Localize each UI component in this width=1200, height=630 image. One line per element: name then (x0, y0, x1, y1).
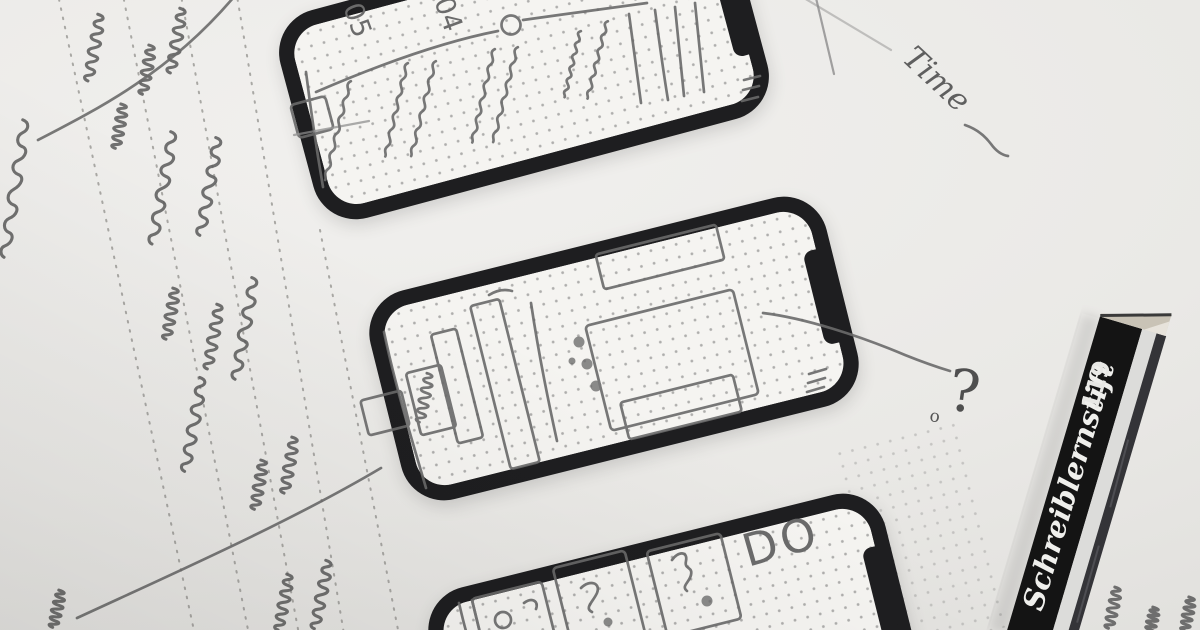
question-mark-small-letter: o (928, 406, 941, 427)
question-mark: ? (944, 356, 984, 428)
page-number-04: 04 (427, 0, 468, 36)
ink-sketch-layer: 05 04 (0, 0, 1200, 630)
pencil-object: Schreiblernstift 119 (986, 290, 1172, 630)
grid-card-1 (472, 581, 561, 630)
question-annotation: ? o (763, 313, 984, 427)
list-bar-2 (470, 299, 540, 469)
wireframe-detail-screen (360, 225, 826, 488)
card-main-sketch (585, 289, 759, 431)
header-divider-line (316, 31, 498, 92)
bar-cap-line (489, 290, 512, 295)
time-label: Time (896, 40, 978, 120)
crossing-line-1 (804, 0, 891, 50)
card-1-circle-sketch (495, 612, 511, 628)
card-top-sketch (595, 225, 724, 290)
list-bar-1 (431, 329, 483, 444)
time-swoosh-line (965, 125, 1008, 156)
time-annotation: Time (804, 0, 1008, 156)
card-3-dot (702, 596, 713, 607)
list-bar-3-line (531, 303, 557, 441)
connector-curve-to-question (763, 313, 950, 371)
grid-card-3 (646, 533, 741, 630)
side-tab-sketch (360, 390, 409, 435)
placeholder-text-lines (324, 3, 704, 180)
page-number-05: 05 (336, 0, 377, 42)
card-2-scribble (581, 583, 598, 612)
card-2-dot (604, 618, 613, 627)
wireframe-cards-screen (459, 533, 742, 630)
card-1-scribble (524, 600, 537, 609)
card-bottom-sketch (620, 375, 742, 440)
hamburger-menu-icon-sketch (807, 369, 826, 392)
slider-knob-sketch (502, 16, 521, 35)
ellipsis-dots-icon (569, 337, 602, 392)
photo-of-wireframe-sketches: 05 04 (0, 0, 1200, 630)
card-3-scribble (672, 553, 691, 591)
hamburger-menu-icon-sketch (742, 76, 760, 101)
do-label: DO (736, 505, 826, 577)
